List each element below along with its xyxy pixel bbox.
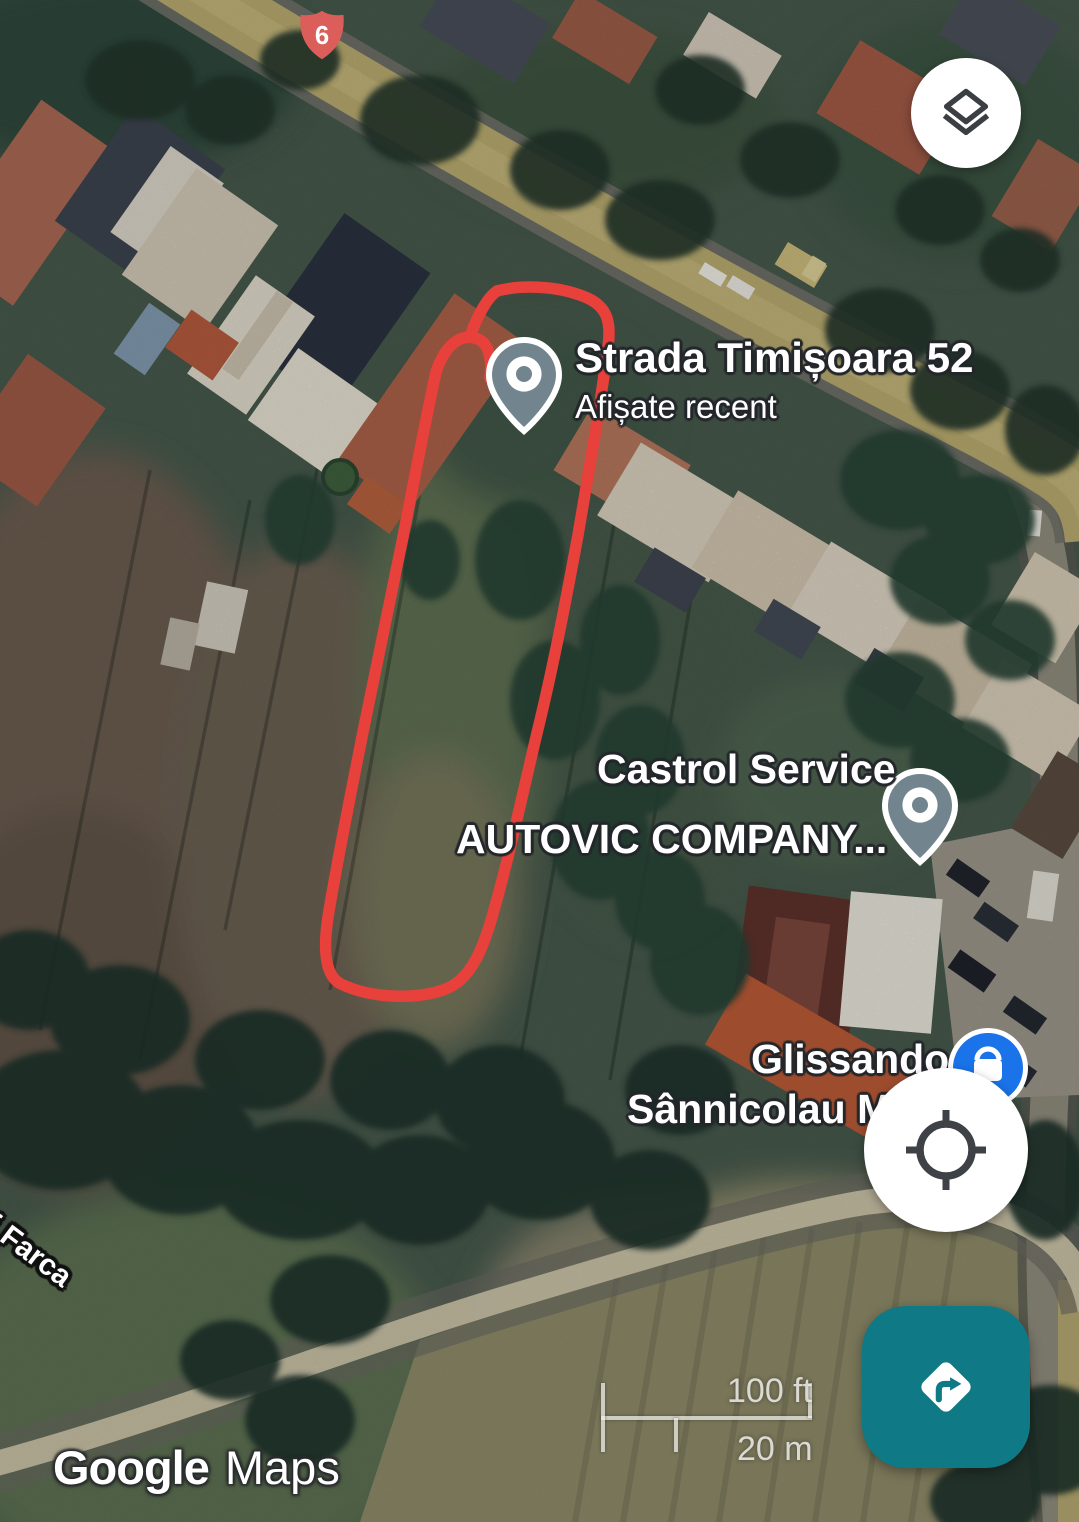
directions-icon xyxy=(907,1348,985,1426)
google-maps-satellite-view: 6 tii Farca Strada Timișoara 52 Afișate … xyxy=(0,0,1079,1522)
strada-subtitle: Afișate recent xyxy=(575,390,973,425)
watermark-product: Maps xyxy=(225,1441,340,1494)
castrol-label-line1[interactable]: Castrol Service xyxy=(597,748,896,791)
route-number: 6 xyxy=(315,22,329,50)
glissando-label-line2[interactable]: Sânnicolau M xyxy=(627,1088,891,1131)
scale-metric: 20 m xyxy=(737,1430,813,1469)
strada-label[interactable]: Strada Timișoara 52 Afișate recent xyxy=(575,336,973,425)
scale-imperial: 100 ft xyxy=(727,1372,812,1411)
strada-title: Strada Timișoara 52 xyxy=(575,336,973,380)
strada-timisoara-52-pin[interactable] xyxy=(486,337,562,440)
layers-icon xyxy=(938,85,994,141)
satellite-map-canvas[interactable] xyxy=(0,0,1079,1522)
layers-button[interactable] xyxy=(911,58,1021,168)
my-location-button[interactable] xyxy=(864,1068,1028,1232)
my-location-icon xyxy=(903,1107,989,1193)
map-pin-icon xyxy=(486,337,562,435)
route-6-shield: 6 xyxy=(294,8,350,62)
castrol-label-line2[interactable]: AUTOVIC COMPANY... xyxy=(456,818,887,861)
directions-button[interactable] xyxy=(862,1306,1030,1468)
watermark-brand: Google xyxy=(53,1441,209,1494)
google-maps-watermark: GoogleMaps xyxy=(53,1440,340,1495)
grain-overlay xyxy=(0,0,1079,1522)
